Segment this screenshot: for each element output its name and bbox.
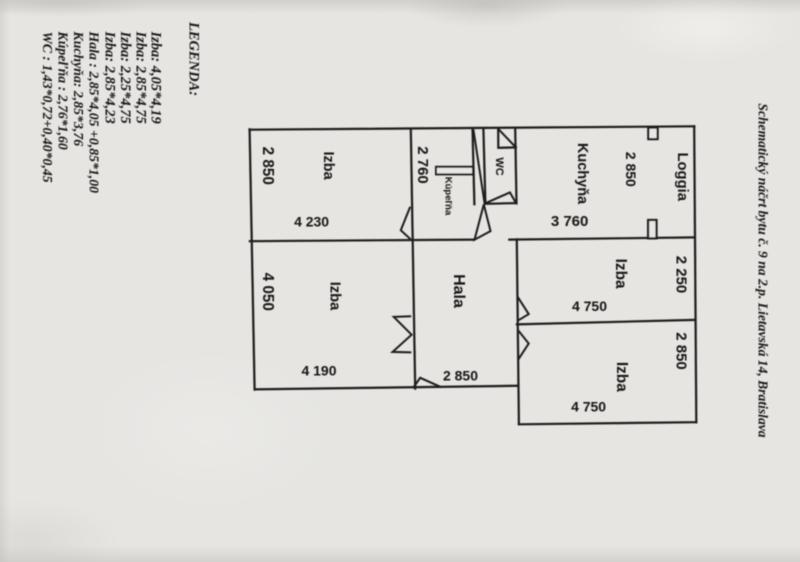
svg-text:Kúpeľňa: Kúpeľňa xyxy=(443,177,454,216)
svg-text:Kuchyňa: 2,85*3,76: Kuchyňa: 2,85*3,76 xyxy=(71,31,86,147)
svg-text:Kuchyňa: Kuchyňa xyxy=(574,143,590,205)
svg-text:Kúpeľňa : 2,76*1,60: Kúpeľňa : 2,76*1,60 xyxy=(56,31,71,150)
svg-text:2 850: 2 850 xyxy=(623,152,639,187)
svg-text:Hala: Hala xyxy=(450,274,467,308)
svg-text:Schematický náčrt bytu č. 9 na: Schematický náčrt bytu č. 9 na 2.p. Liet… xyxy=(756,103,771,437)
svg-text:2 760: 2 760 xyxy=(414,146,431,184)
svg-text:Izba: 2,25*4,75: Izba: 2,25*4,75 xyxy=(117,31,133,124)
svg-text:2 850: 2 850 xyxy=(259,147,276,185)
svg-text:WC: WC xyxy=(493,157,505,175)
svg-text:4 750: 4 750 xyxy=(571,399,606,415)
svg-text:LEGENDA:: LEGENDA: xyxy=(186,21,202,96)
svg-text:Izba: Izba xyxy=(327,282,343,311)
svg-text:Loggia: Loggia xyxy=(674,152,690,201)
svg-text:Izba: Izba xyxy=(320,151,336,180)
svg-text:Izba: Izba xyxy=(612,259,629,289)
svg-text:4 750: 4 750 xyxy=(572,298,607,314)
svg-text:4 230: 4 230 xyxy=(294,214,329,230)
svg-text:4 050: 4 050 xyxy=(259,273,276,311)
svg-text:2 250: 2 250 xyxy=(673,256,690,294)
svg-text:2 850: 2 850 xyxy=(443,367,478,383)
svg-text:Hala : 2,85*4,05 +0,85*1,00: Hala : 2,85*4,05 +0,85*1,00 xyxy=(87,31,102,194)
svg-text:Izba: 2,85*4,23: Izba: 2,85*4,23 xyxy=(101,31,117,124)
svg-text:Izba: 4,05*4,19: Izba: 4,05*4,19 xyxy=(148,31,164,124)
svg-text:4 190: 4 190 xyxy=(301,363,336,379)
svg-text:Izba: 2,85*4,75: Izba: 2,85*4,75 xyxy=(132,31,148,124)
svg-text:3 760: 3 760 xyxy=(551,213,589,230)
svg-text:WC : 1,43*0,72+0,40*0,45: WC : 1,43*0,72+0,40*0,45 xyxy=(40,32,55,183)
svg-text:Izba: Izba xyxy=(613,362,630,392)
svg-text:2 850: 2 850 xyxy=(673,332,690,370)
